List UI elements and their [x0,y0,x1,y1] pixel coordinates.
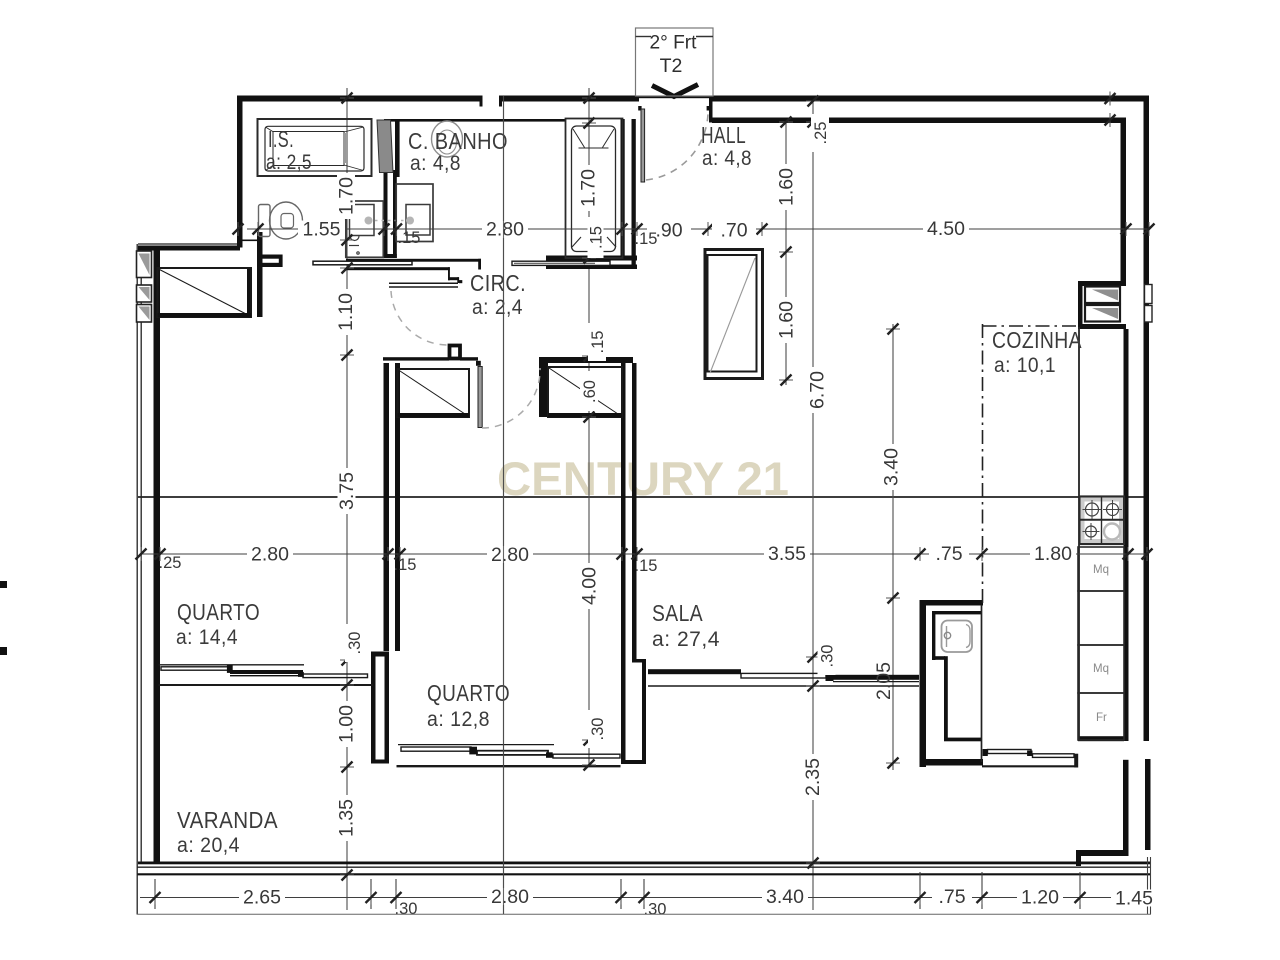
svg-text:SALA: SALA [652,600,703,626]
svg-text:1.70: 1.70 [578,169,600,207]
svg-text:COZINHA: COZINHA [992,327,1082,353]
svg-text:1.80: 1.80 [1034,543,1072,565]
svg-text:1.45: 1.45 [1115,888,1153,910]
svg-text:.30: .30 [395,900,418,918]
svg-text:2.80: 2.80 [486,219,524,241]
svg-text:C. BANHO: C. BANHO [408,128,508,154]
svg-text:.25: .25 [812,122,830,145]
svg-text:QUARTO: QUARTO [177,599,260,625]
svg-text:4.00: 4.00 [579,567,601,605]
svg-text:1.35: 1.35 [336,799,358,837]
svg-text:1.60: 1.60 [776,168,798,206]
svg-text:Mq: Mq [1093,663,1109,675]
svg-text:.30: .30 [644,901,667,919]
svg-text:.15: .15 [589,331,607,354]
svg-text:1.00: 1.00 [336,705,358,743]
svg-text:1.20: 1.20 [1021,887,1059,909]
svg-text:Fr: Fr [1096,712,1107,724]
svg-text:2.80: 2.80 [491,544,529,566]
svg-text:2.80: 2.80 [491,886,529,908]
svg-text:.30: .30 [589,718,607,741]
svg-text:.60: .60 [581,380,599,403]
svg-text:QUARTO: QUARTO [427,680,510,706]
svg-text:.70: .70 [720,220,747,242]
svg-text:a: 4,8: a: 4,8 [702,147,752,170]
svg-text:1.70: 1.70 [336,177,358,215]
svg-text:3.55: 3.55 [768,543,806,565]
svg-text:4.50: 4.50 [927,218,965,240]
svg-text:VARANDA: VARANDA [177,807,278,833]
svg-text:.75: .75 [938,886,965,908]
svg-text:a: 2,5: a: 2,5 [266,151,312,174]
svg-text:3.40: 3.40 [881,448,903,486]
svg-text:.15: .15 [398,229,421,247]
svg-text:2.05: 2.05 [873,662,895,700]
svg-text:.30: .30 [346,632,364,655]
svg-text:I.S.: I.S. [268,126,294,152]
svg-text:1.60: 1.60 [776,301,798,339]
svg-text:a: 4,8: a: 4,8 [410,152,461,175]
svg-text:a: 10,1: a: 10,1 [994,354,1056,377]
svg-text:1.55: 1.55 [303,219,341,241]
svg-text:.15: .15 [635,230,658,248]
svg-text:.15: .15 [588,226,606,249]
svg-text:.90: .90 [655,220,682,242]
svg-text:.15: .15 [635,557,658,575]
svg-text:Mq: Mq [1093,564,1109,576]
svg-text:T2: T2 [660,55,683,77]
svg-text:a: 12,8: a: 12,8 [427,708,490,731]
svg-text:CIRC.: CIRC. [470,270,526,296]
svg-text:a: 27,4: a: 27,4 [652,628,720,651]
svg-text:6.70: 6.70 [807,371,829,409]
svg-text:.25: .25 [159,554,182,572]
svg-text:.75: .75 [935,543,962,565]
svg-text:3.75: 3.75 [336,472,358,510]
svg-text:a: 14,4: a: 14,4 [176,626,238,649]
svg-text:.30: .30 [819,645,837,668]
svg-text:1.10: 1.10 [335,293,357,331]
svg-text:a: 20,4: a: 20,4 [177,834,240,857]
svg-text:HALL: HALL [701,122,746,148]
svg-text:2.80: 2.80 [251,544,289,566]
svg-text:3.40: 3.40 [766,886,804,908]
svg-text:2.35: 2.35 [802,758,824,796]
svg-text:2.65: 2.65 [243,887,281,909]
svg-text:a: 2,4: a: 2,4 [472,296,523,319]
svg-text:2° Frt: 2° Frt [650,32,698,54]
svg-text:.15: .15 [394,556,417,574]
